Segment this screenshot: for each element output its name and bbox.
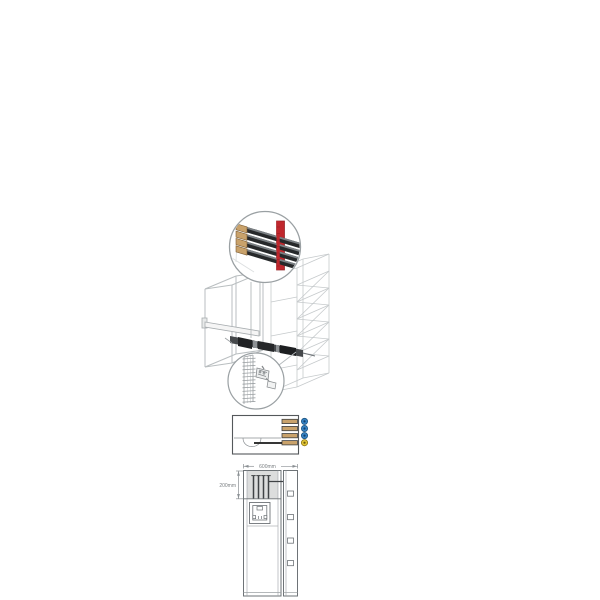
depth-dimension: 200mm <box>219 471 243 499</box>
hinge <box>288 561 294 566</box>
support-detail-callout <box>228 353 284 409</box>
phase-indicator-dots <box>301 418 307 446</box>
hinge <box>288 538 294 543</box>
hinge <box>288 515 294 520</box>
arrow-up-icon <box>237 471 240 476</box>
width-dimension-label: 600mm <box>259 464 276 470</box>
copper-busbar <box>282 434 298 438</box>
red-busbar-holder-flange <box>277 221 280 270</box>
copper-busbar <box>282 419 298 423</box>
copper-busbar <box>282 426 298 430</box>
front-view-drawing: 600mm 200mm <box>219 464 297 596</box>
arrow-left-icon <box>244 465 249 468</box>
width-dimension: 600mm <box>244 464 298 470</box>
side-column <box>284 471 298 597</box>
arrow-down-icon <box>237 494 240 499</box>
breaker-device <box>250 503 271 524</box>
phase-dot-center <box>303 435 305 437</box>
phase-dot-center <box>303 442 305 444</box>
phase-dot-center <box>303 420 305 422</box>
top-view-schematic <box>233 416 308 455</box>
support-rail <box>202 318 259 336</box>
phase-dot-center <box>303 427 305 429</box>
arrow-right-icon <box>293 465 298 468</box>
busbar-detail-callout <box>230 212 306 283</box>
hinge <box>288 491 294 496</box>
technical-illustration: 600mm 200mm <box>0 0 600 600</box>
depth-dimension-label: 200mm <box>219 483 236 489</box>
copper-busbar <box>282 441 298 445</box>
